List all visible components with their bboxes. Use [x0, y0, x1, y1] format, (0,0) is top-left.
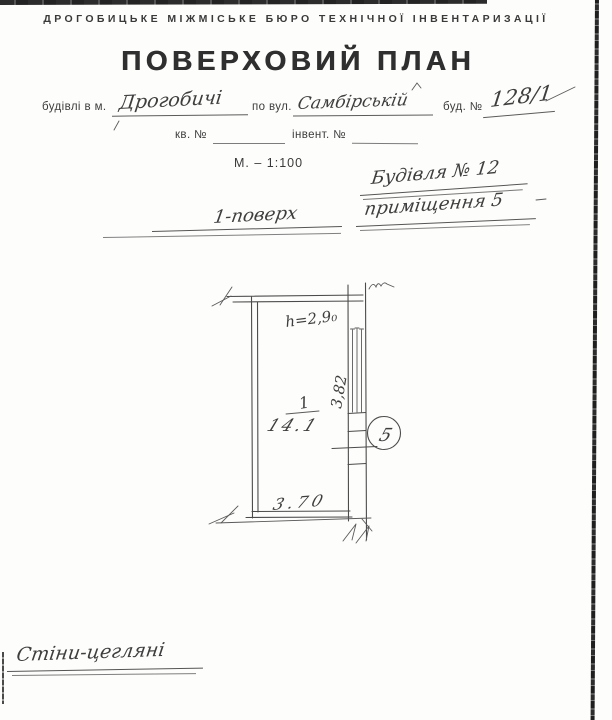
shaft-divider-3-extended — [332, 447, 377, 449]
room-area-label: 14.1 — [264, 417, 322, 436]
wall-top-outer — [227, 295, 363, 297]
wall-left-inner — [258, 302, 259, 512]
premises-badge-number: 5 — [376, 425, 394, 445]
stray-dash-mark — [536, 199, 546, 200]
side-dimension-label: 3,82 — [327, 374, 351, 410]
shaft-bottom-arrow-b — [356, 526, 369, 543]
stray-pen-mark — [546, 87, 575, 101]
wall-bottom-outer — [246, 517, 352, 518]
ceiling-height-label: h=2,9₀ — [284, 307, 338, 331]
shaft-divider-1 — [348, 413, 366, 414]
top-right-scribble — [369, 283, 394, 289]
scanned-floor-plan-page: ДРОГОБИЦЬКЕ МІЖМІСЬКЕ БЮРО ТЕХНІЧНОЇ ІНВ… — [0, 0, 612, 720]
shaft-divider-2 — [348, 431, 366, 432]
floor-plan-drawing: h=2,9₀ 1 14.1 3,82 3.70 5 — [0, 0, 612, 720]
tick-mark — [114, 121, 119, 130]
width-dimension-label: 3.70 — [271, 491, 329, 514]
shaft-left-edge — [348, 285, 349, 521]
room-number-label: 1 — [297, 392, 310, 412]
dimension-line-bottom — [216, 518, 371, 523]
caret-mark — [412, 83, 421, 90]
shaft-divider-4 — [348, 464, 366, 465]
dim-tick-top-left-a — [212, 296, 231, 306]
shaft-bottom-arrow-a — [343, 524, 356, 541]
wall-top-inner — [233, 301, 363, 302]
shaft-right-edge — [366, 283, 367, 540]
dim-tick-bottom-left-b — [221, 506, 238, 523]
wall-left-outer — [252, 297, 253, 518]
